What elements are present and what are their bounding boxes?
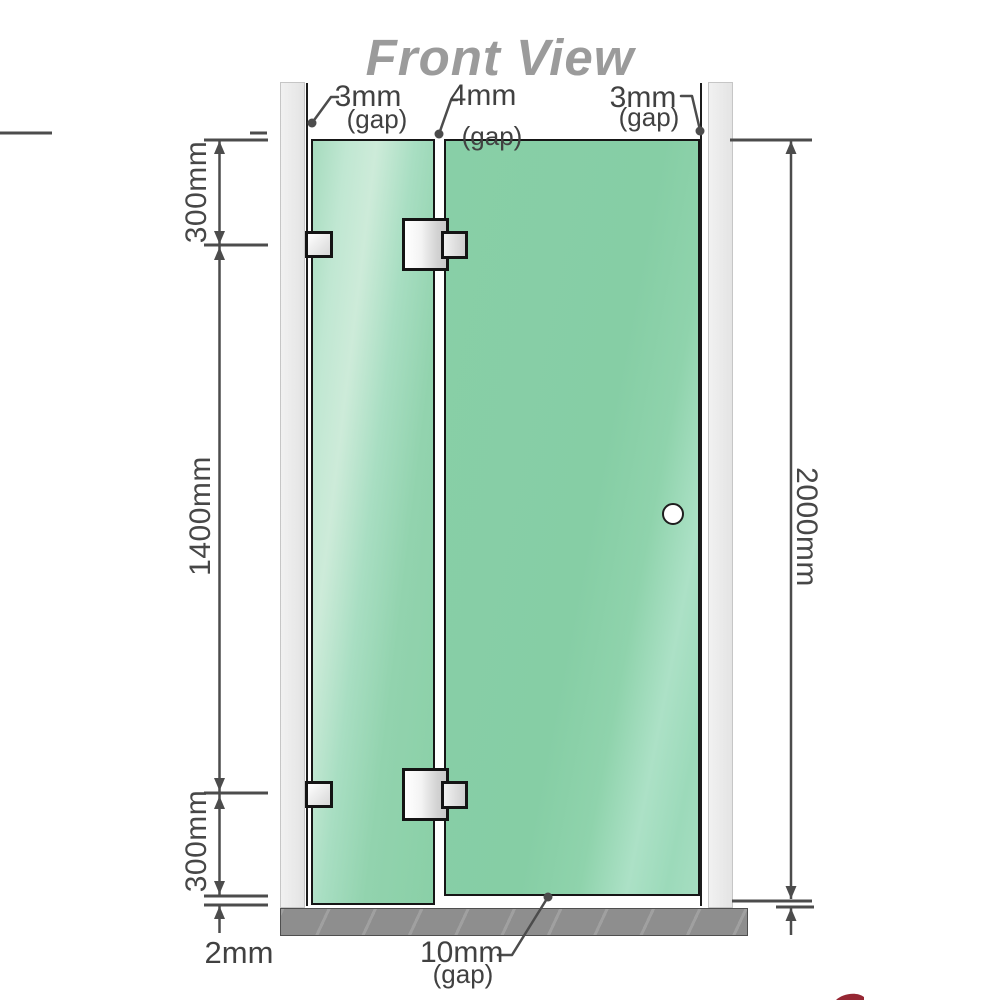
- top-hinge-clamp-icon: [441, 231, 468, 259]
- dim-label-right-total-height: 2000mm: [789, 467, 823, 587]
- left-wall: [280, 82, 305, 908]
- logo-fragment: [836, 994, 864, 1000]
- dim-label-left-bottom: 300mm: [180, 790, 214, 893]
- gap-label-top-left-note: (gap): [330, 104, 424, 135]
- dim-label-left-top: 300mm: [180, 141, 214, 244]
- shower-screen-front-view-diagram: Front View: [0, 0, 1000, 1000]
- gap-label-top-middle-value: 4mm: [444, 79, 522, 113]
- dim-label-floor-clearance: 2mm: [198, 935, 280, 971]
- bottom-hinge-clamp-icon: [441, 781, 468, 809]
- bottom-wall-bracket-icon: [305, 781, 333, 808]
- dim-label-left-middle: 1400mm: [184, 456, 218, 576]
- floor-base: [280, 908, 748, 936]
- gap-label-bottom-note: (gap): [416, 959, 510, 990]
- right-wall-channel-line: [700, 83, 702, 906]
- top-wall-bracket-icon: [305, 231, 333, 258]
- right-wall: [708, 82, 733, 908]
- gap-label-top-middle-note: (gap): [443, 121, 541, 152]
- door-handle-knob-icon: [662, 503, 684, 525]
- gap-label-top-right-note: (gap): [602, 102, 696, 133]
